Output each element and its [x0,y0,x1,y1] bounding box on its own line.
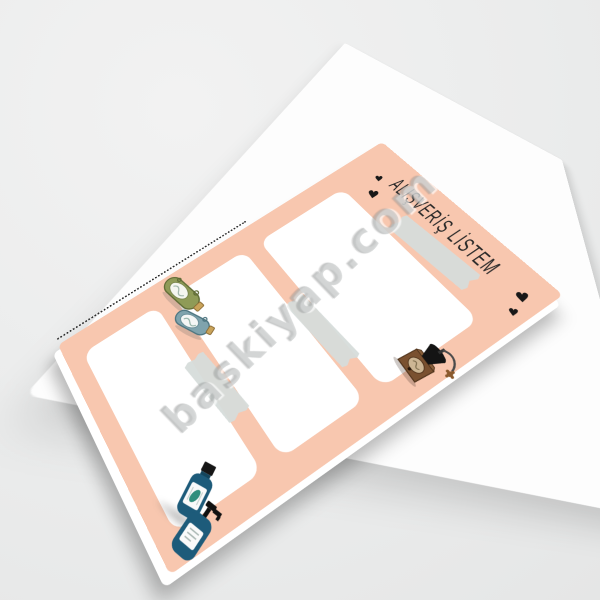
heart-icon: ♥ [366,189,380,201]
heart-icon: ♥ [507,307,519,319]
product-photo-stage: ♥ ♥ ALIŞVERİŞ LİSTEM ♥ ♥ [0,0,600,600]
heart-icon: ♥ [514,291,530,306]
